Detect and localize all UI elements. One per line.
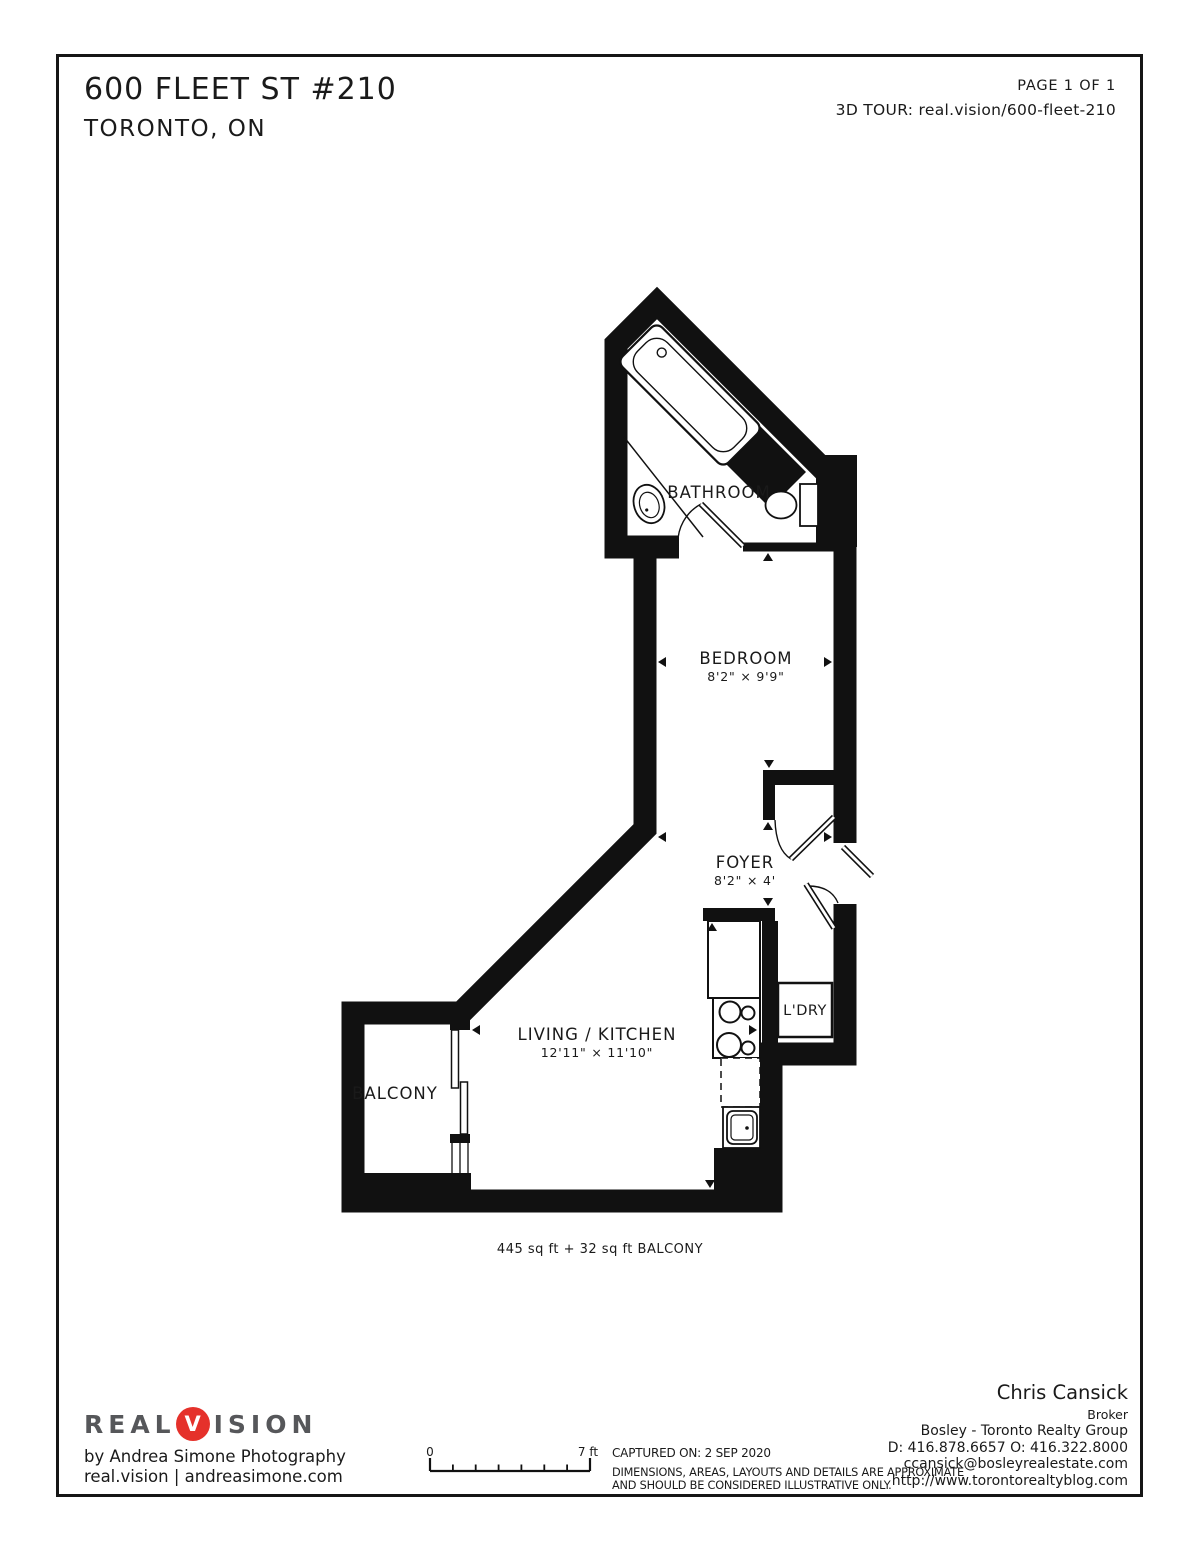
counter-dashed [721, 1058, 760, 1107]
balcony-window [452, 1143, 468, 1173]
bathroom-right-wall [816, 455, 857, 547]
balcony-bottom-wall [342, 1173, 471, 1203]
kitchen-fixtures [708, 921, 760, 1148]
brand-v-icon: V [176, 1407, 210, 1441]
agent-email[interactable]: ccansick@bosleyrealestate.com [888, 1456, 1128, 1473]
room-label-foyer: FOYER [716, 853, 775, 872]
room-label-balcony: BALCONY [352, 1084, 438, 1103]
closet-door-arc [775, 820, 791, 859]
scale-bar [430, 1458, 590, 1471]
room-dims-foyer: 8'2" × 4' [714, 873, 776, 888]
closet-top-wall [763, 770, 840, 785]
captured-on: CAPTURED ON: 2 SEP 2020 [612, 1446, 771, 1460]
room-label-laundry: L'DRY [783, 1003, 827, 1019]
room-label-bedroom: BEDROOM [699, 649, 792, 668]
balcony-sliding-door [452, 1030, 469, 1173]
brand-suffix: ISION [214, 1410, 318, 1439]
brand-prefix: REAL [84, 1410, 176, 1439]
agent-title: Broker [888, 1407, 1128, 1423]
room-dims-bedroom: 8'2" × 9'9" [707, 669, 784, 684]
room-label-bathroom: BATHROOM [667, 483, 771, 502]
sliding-door-mid-post [450, 1134, 470, 1143]
area-note: 445 sq ft + 32 sq ft BALCONY [497, 1242, 703, 1257]
agent-card: Chris Cansick Broker Bosley - Toronto Re… [888, 1381, 1128, 1489]
agent-name: Chris Cansick [888, 1381, 1128, 1404]
disclaimer-line2: AND SHOULD BE CONSIDERED ILLUSTRATIVE ON… [612, 1479, 892, 1492]
faucet-dot [745, 1126, 749, 1130]
room-label-living: LIVING / KITCHEN [518, 1025, 677, 1044]
kitchen-stub-wall [703, 908, 775, 921]
realvision-logo: REAL V ISION [84, 1407, 317, 1441]
kitchen-laundry-wall [762, 921, 778, 1045]
sliding-door-top-post [450, 1002, 470, 1030]
room-dims-living: 12'11" × 11'10" [541, 1045, 653, 1060]
closet-left-wall [763, 785, 775, 820]
brand-links[interactable]: real.vision | andreasimone.com [84, 1467, 343, 1486]
agent-company: Bosley - Toronto Realty Group [888, 1423, 1128, 1440]
scale-end: 7 ft [578, 1445, 598, 1459]
below-sink-wall [714, 1148, 782, 1196]
agent-website[interactable]: http://www.torontorealtyblog.com [888, 1473, 1128, 1490]
agent-phones: D: 416.878.6657 O: 416.322.8000 [888, 1440, 1128, 1457]
brand-byline: by Andrea Simone Photography [84, 1447, 346, 1466]
floorplan-drawing: BATHROOM BEDROOM 8'2" × 9'9" FOYER 8'2" … [0, 0, 1200, 1553]
scale-start: 0 [426, 1445, 434, 1459]
floorplan-page: 600 FLEET ST #210 TORONTO, ON PAGE 1 OF … [0, 0, 1200, 1553]
kitchen-counter [708, 921, 760, 998]
